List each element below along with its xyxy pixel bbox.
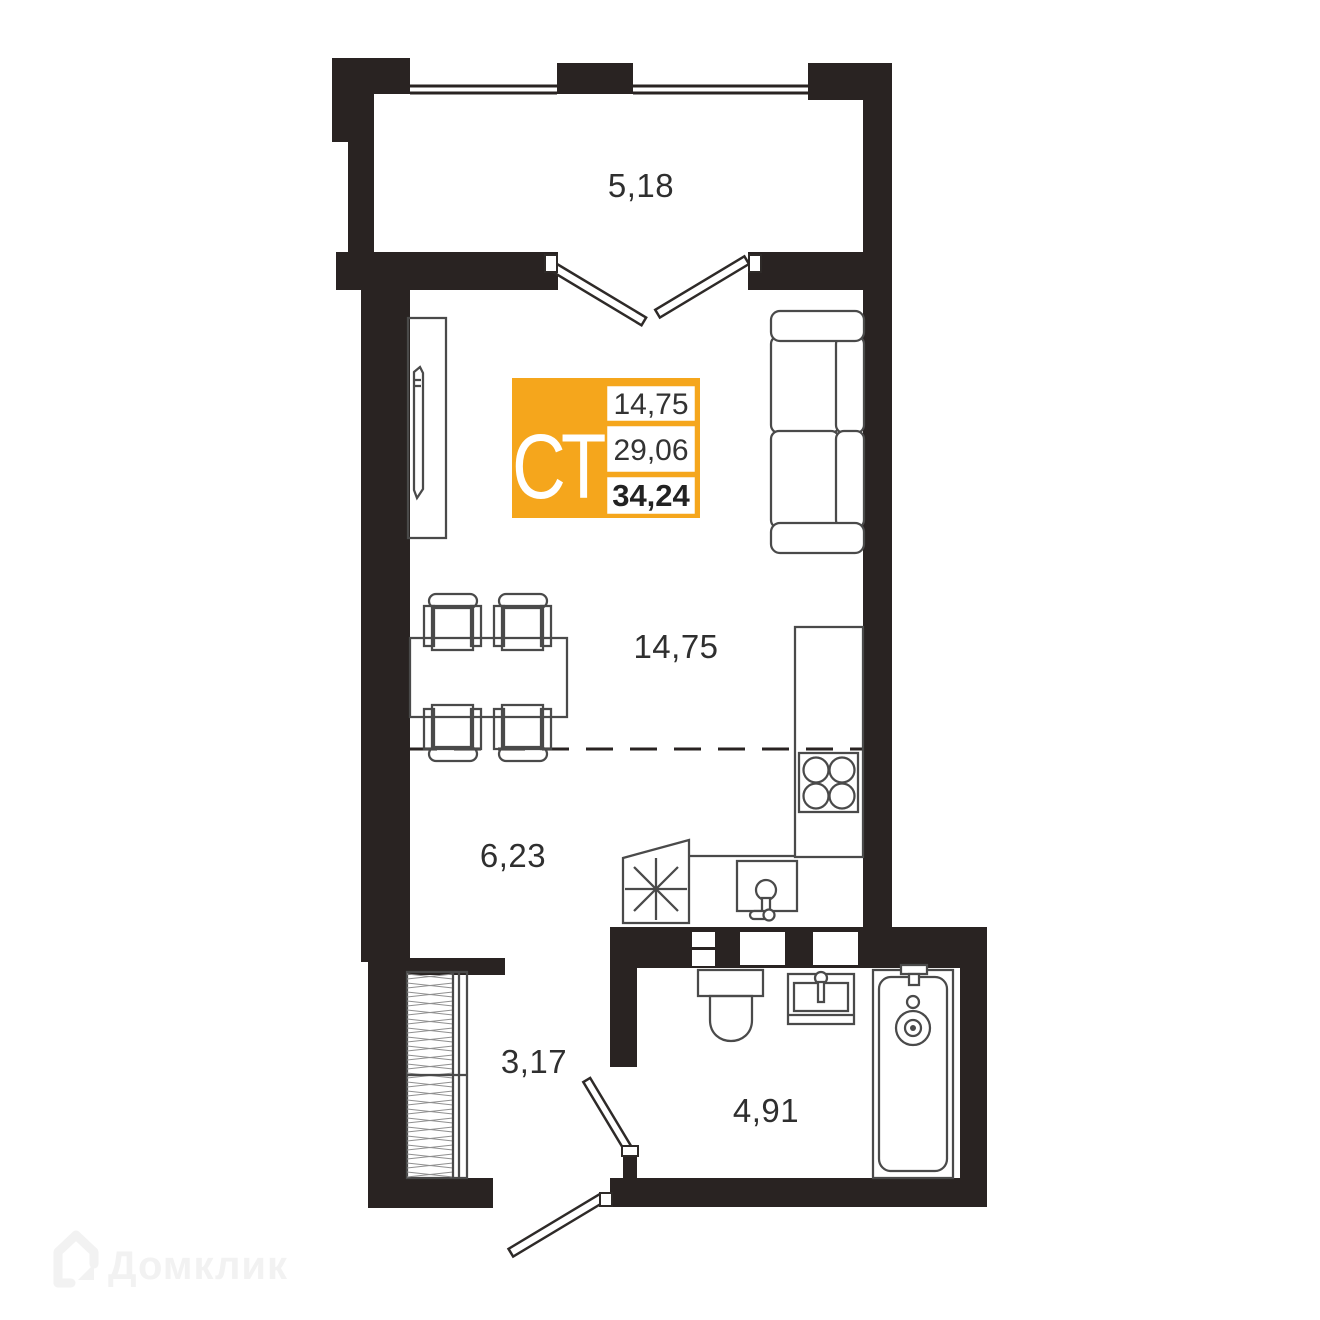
badge-living-area: 29,06: [613, 434, 688, 467]
area-labels: 5,18 14,75 6,23 3,17 4,91: [480, 167, 799, 1129]
vent-shaft: [740, 932, 785, 965]
tv-unit: [408, 318, 446, 538]
stove: [799, 753, 858, 812]
bathroom-door: [583, 1078, 638, 1156]
wall-segment: [557, 63, 633, 94]
sofa: [771, 311, 864, 553]
bathroom-fixtures: [698, 965, 953, 1178]
kitchen-counter: [795, 627, 863, 857]
balcony-doors: [545, 255, 761, 325]
badge-room-area: 14,75: [613, 388, 688, 421]
vent-shaft: [692, 950, 715, 966]
wall-door-stub: [623, 1156, 637, 1178]
balcony-area-label: 5,18: [608, 167, 674, 204]
domclick-watermark: Домклик: [58, 1235, 288, 1288]
dining-chairs: [424, 594, 551, 761]
wall-segment: [748, 252, 892, 290]
vent-shaft: [692, 932, 715, 947]
balcony-door-left-leaf: [552, 264, 646, 325]
wall-segment: [368, 962, 408, 1208]
chair: [494, 705, 551, 761]
chair: [424, 705, 481, 761]
chair: [494, 594, 551, 650]
corner-cabinet: [623, 840, 689, 923]
wall-segment: [863, 63, 892, 947]
wardrobe: [407, 972, 467, 1178]
floor-plan: 5,18 14,75 6,23 3,17 4,91 СТ 14,75 29,06…: [0, 0, 1320, 1320]
wall-segment: [348, 94, 374, 254]
balcony-door-right-leaf: [655, 256, 749, 317]
badge-type-label: СТ: [512, 416, 605, 518]
watermark-text: Домклик: [108, 1244, 288, 1288]
kitchen: [623, 627, 863, 923]
entrance-door-leaf: [509, 1194, 604, 1256]
apartment-type-badge: СТ 14,75 29,06 34,24: [512, 378, 700, 518]
toilet: [698, 970, 763, 1041]
wall-segment: [610, 1178, 987, 1207]
bathroom-door-leaf: [583, 1078, 633, 1154]
domclick-house-icon: [58, 1235, 94, 1283]
door-hinge: [600, 1193, 612, 1206]
wall-segment: [368, 1178, 493, 1208]
bathtub: [873, 965, 953, 1178]
badge-total-area: 34,24: [612, 478, 690, 513]
main-room-area-label: 14,75: [633, 628, 718, 665]
washbasin: [788, 972, 854, 1024]
vent-shaft: [813, 932, 858, 965]
wall-segment: [336, 252, 558, 290]
door-hinge: [622, 1146, 638, 1156]
door-hinge: [545, 255, 557, 272]
chair: [424, 594, 481, 650]
hallway-area-label: 3,17: [501, 1043, 567, 1080]
asterisk-symbol: [625, 858, 687, 920]
wall-segment: [361, 290, 410, 962]
kitchen-sink: [737, 861, 797, 921]
door-hinge: [749, 255, 761, 272]
wall-segment: [610, 927, 987, 968]
entrance-door: [509, 1193, 612, 1257]
living-zone-area-label: 6,23: [480, 837, 546, 874]
wall-segment: [960, 927, 987, 1207]
bathroom-area-label: 4,91: [733, 1092, 799, 1129]
